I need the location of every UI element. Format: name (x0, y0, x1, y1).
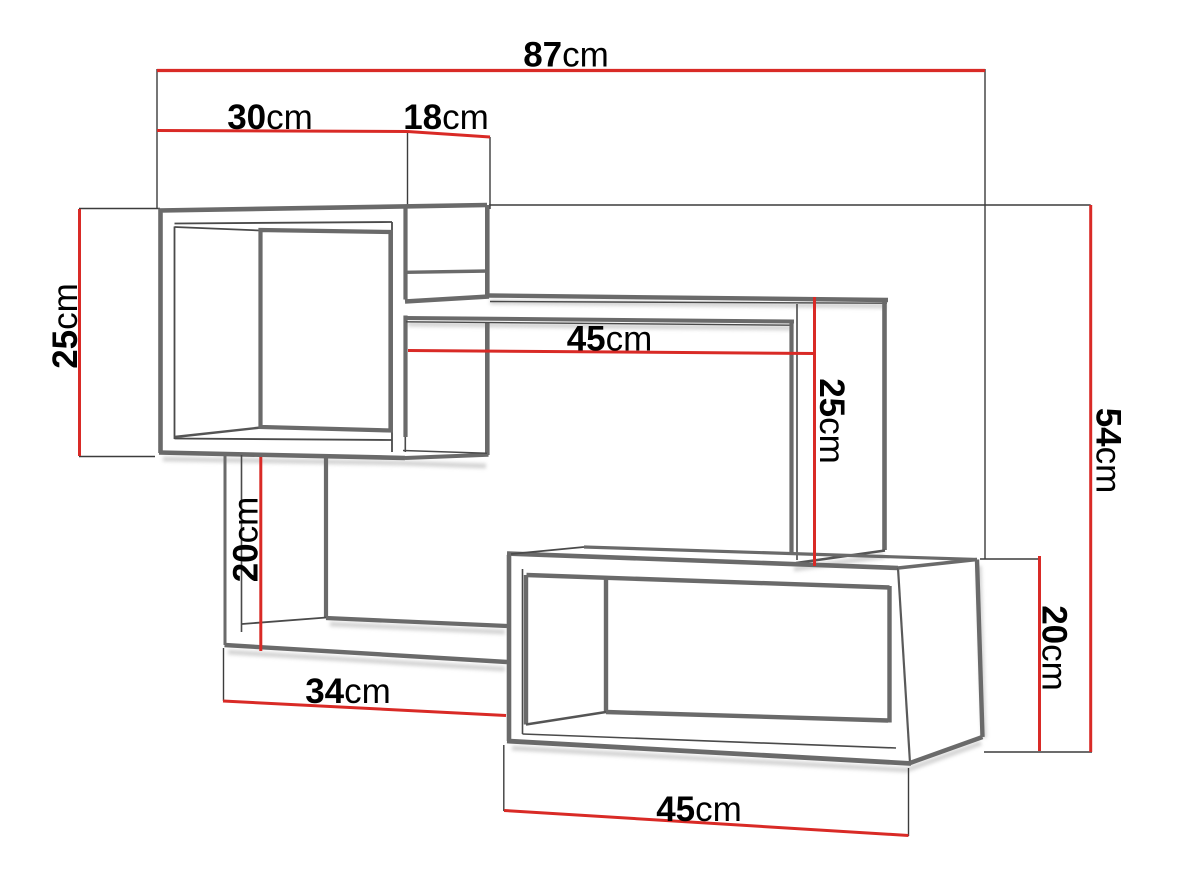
svg-text:87cm: 87cm (523, 36, 609, 75)
svg-text:45cm: 45cm (567, 320, 653, 359)
svg-text:54cm: 54cm (1089, 408, 1128, 494)
svg-text:34cm: 34cm (305, 672, 391, 711)
svg-text:45cm: 45cm (656, 790, 742, 829)
svg-text:25cm: 25cm (46, 283, 85, 369)
svg-text:20cm: 20cm (227, 497, 266, 583)
svg-text:25cm: 25cm (812, 378, 851, 464)
svg-text:18cm: 18cm (403, 98, 489, 137)
svg-text:20cm: 20cm (1035, 605, 1074, 691)
svg-text:30cm: 30cm (227, 98, 313, 137)
